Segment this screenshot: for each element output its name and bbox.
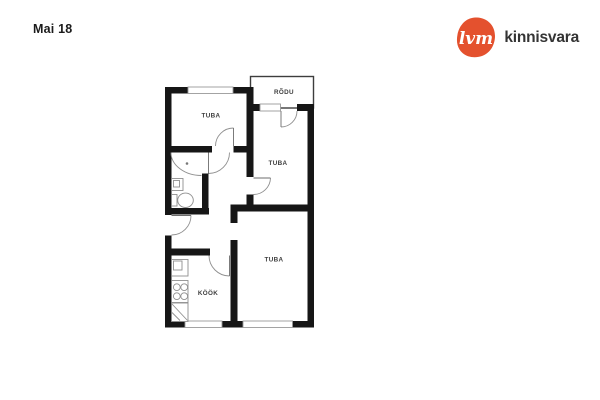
shower-drain-icon	[186, 162, 189, 165]
sink-bowl-icon	[174, 261, 183, 270]
wall-tuba1-bottom-left	[165, 146, 212, 153]
toilet-tank-icon	[172, 195, 178, 207]
wall-tuba3-left-stub	[231, 212, 238, 224]
door-arc-bathroom	[209, 153, 230, 174]
wall-kitchen-top	[165, 249, 210, 256]
window-tuba1	[188, 87, 233, 94]
bathroom-fixtures	[171, 153, 202, 208]
wall-balcony-stub-right	[297, 104, 308, 111]
washbasin-bowl-icon	[174, 181, 180, 188]
kitchen-fixtures	[172, 260, 189, 322]
window-tuba3	[243, 321, 293, 328]
door-arc-tuba2	[254, 178, 271, 195]
wall-balcony-stub-left	[254, 104, 261, 111]
room-label-tuba-2: TUBA	[269, 160, 288, 167]
door-arc-balcony	[281, 111, 297, 127]
window-tuba2	[260, 104, 281, 111]
room-labels: TUBA RÕDU TUBA TUBA KÖÖK	[198, 87, 294, 297]
wall-right	[308, 104, 315, 328]
wall-tuba3-top	[231, 205, 315, 212]
room-label-tuba-3: TUBA	[265, 257, 284, 264]
door-arc-entry	[172, 216, 192, 236]
window-kitchen	[185, 321, 222, 328]
stove-burner-icon	[181, 284, 188, 291]
stove-burner-icon	[173, 284, 180, 291]
door-arc-kitchen	[209, 256, 230, 277]
room-label-rodu: RÕDU	[274, 87, 294, 96]
wall-bottom-1	[165, 321, 185, 328]
stove-burner-icon	[181, 293, 188, 300]
floorplan: TUBA RÕDU TUBA TUBA KÖÖK	[0, 0, 600, 400]
door-arc-tuba1	[216, 128, 234, 146]
wall-kitchen-right	[231, 240, 238, 322]
wall-bottom-2	[222, 321, 243, 328]
wall-bathroom-bottom	[165, 208, 209, 215]
wall-center-vertical-upper	[247, 87, 254, 177]
stove-burner-icon	[173, 293, 180, 300]
room-label-kook: KÖÖK	[198, 288, 218, 297]
room-label-tuba-1: TUBA	[202, 113, 221, 120]
toilet-bowl-icon	[178, 193, 194, 207]
